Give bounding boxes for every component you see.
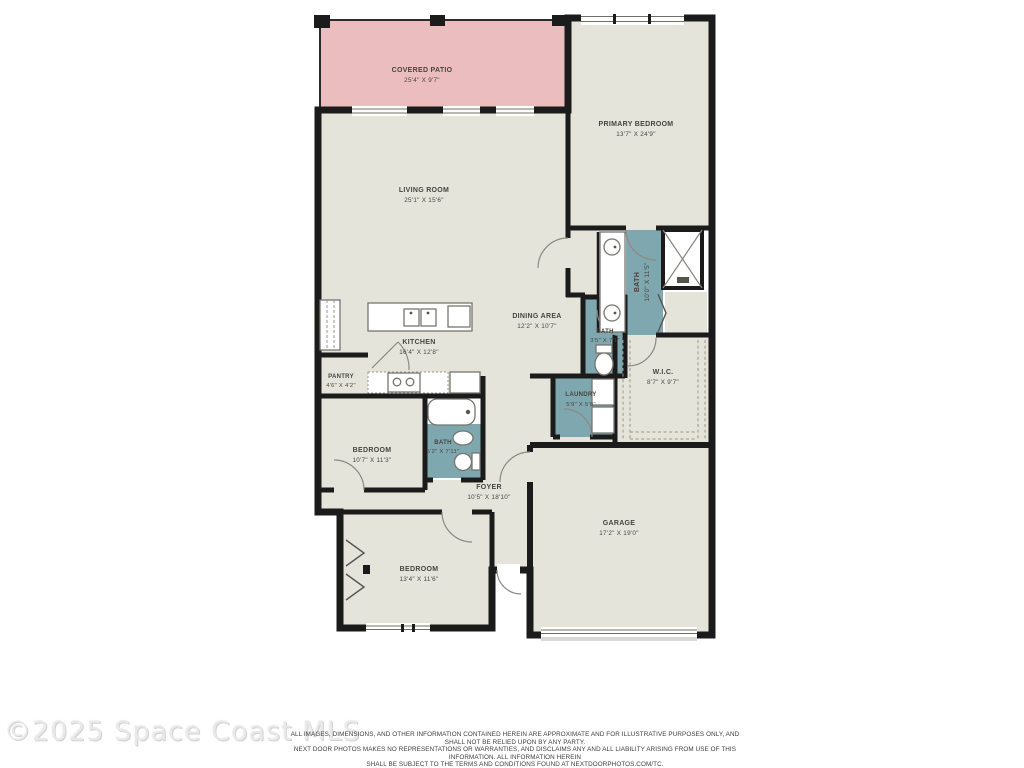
svg-text:KITCHEN: KITCHEN [402,339,435,346]
svg-text:BEDROOM: BEDROOM [353,447,392,454]
floorplan-svg: COVERED PATIO 25'4" X 9'7" PRIMARY BEDRO… [0,0,1024,768]
svg-text:13'4" X 11'6": 13'4" X 11'6" [399,576,438,583]
svg-text:BATH: BATH [434,440,451,446]
svg-text:10'5" X 18'10": 10'5" X 18'10" [467,494,510,501]
svg-text:DINING AREA: DINING AREA [512,313,561,320]
svg-text:25'1" X 15'6": 25'1" X 15'6" [404,197,444,204]
svg-text:10'7" X 11'3": 10'7" X 11'3" [352,457,391,464]
svg-text:COVERED PATIO: COVERED PATIO [392,67,453,74]
svg-text:12'2" X 10'7": 12'2" X 10'7" [517,323,557,330]
svg-text:BATH: BATH [596,329,613,335]
svg-text:5'2" X 7'11": 5'2" X 7'11" [427,449,460,455]
svg-text:BATH: BATH [634,272,641,292]
bath-nook [665,292,707,333]
svg-text:PANTRY: PANTRY [328,374,354,380]
front-door-opening [497,564,520,575]
kitchen-counter [368,372,480,393]
svg-text:BEDROOM: BEDROOM [400,566,439,573]
floorplan-page: COVERED PATIO 25'4" X 9'7" PRIMARY BEDRO… [0,0,1024,768]
disclaimer-line-2: NEXT DOOR PHOTOS MAKES NO REPRESENTATION… [282,746,748,761]
svg-text:25'4" X 9'7": 25'4" X 9'7" [404,77,440,84]
vanity-sinks [600,232,625,332]
shower [663,230,702,288]
svg-text:8'7" X 9'7": 8'7" X 9'7" [647,379,679,386]
svg-text:10'0" X 11'5": 10'0" X 11'5" [644,262,651,301]
svg-text:LAUNDRY: LAUNDRY [565,392,596,398]
svg-text:3'5" X 7'1": 3'5" X 7'1" [590,338,620,344]
covered-patio-area [314,15,566,110]
half-bath-toilet [595,345,613,375]
svg-text:LIVING ROOM: LIVING ROOM [399,187,449,194]
svg-text:13'7" X 24'9": 13'7" X 24'9" [616,131,656,138]
svg-text:5'9" X 5'8": 5'9" X 5'8" [566,402,596,408]
disclaimer-line-3: SHALL BE SUBJECT TO THE TERMS AND CONDIT… [282,761,748,768]
svg-text:16'4" X 12'8": 16'4" X 12'8" [399,349,439,356]
svg-text:17'2" X 19'0": 17'2" X 19'0" [599,530,639,537]
svg-text:W.I.C.: W.I.C. [653,369,674,376]
svg-text:FOYER: FOYER [476,484,502,491]
garage-door [541,627,697,641]
kitchen-island [368,303,472,331]
disclaimer-text: ALL IMAGES, DIMENSIONS, AND OTHER INFORM… [282,731,748,768]
svg-text:4'6" X 4'2": 4'6" X 4'2" [326,383,356,389]
svg-text:GARAGE: GARAGE [603,520,636,527]
disclaimer-line-1: ALL IMAGES, DIMENSIONS, AND OTHER INFORM… [282,731,748,746]
svg-text:PRIMARY BEDROOM: PRIMARY BEDROOM [599,121,674,128]
pantry-shelves [320,300,340,350]
